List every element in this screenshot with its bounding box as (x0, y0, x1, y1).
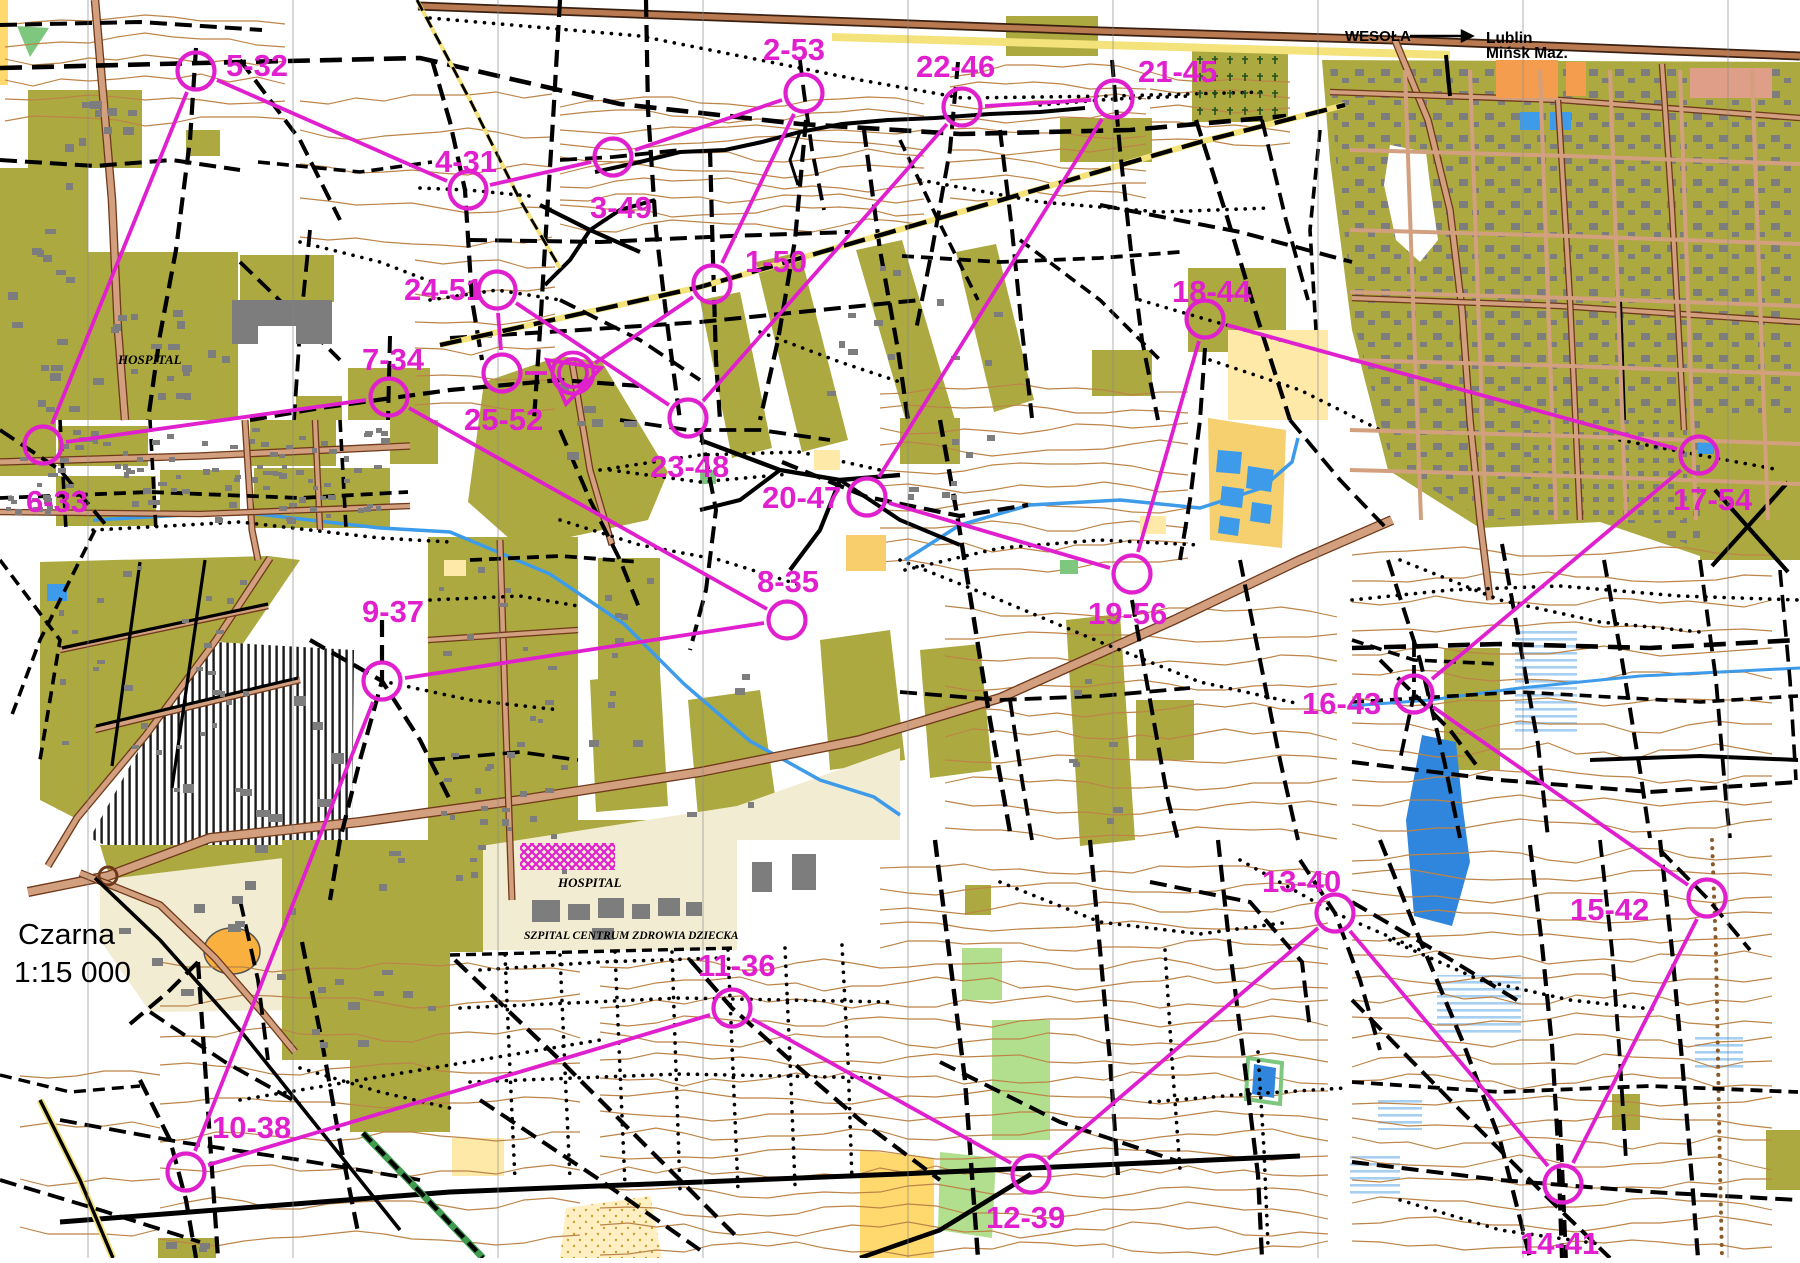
svg-text:3-49: 3-49 (590, 190, 652, 225)
svg-text:6-33: 6-33 (26, 484, 88, 519)
svg-text:WESOŁA: WESOŁA (1345, 28, 1411, 45)
svg-text:15-42: 15-42 (1570, 892, 1649, 927)
svg-text:16-43: 16-43 (1302, 686, 1381, 721)
svg-text:1:15 000: 1:15 000 (14, 957, 131, 989)
svg-text:24-51: 24-51 (404, 272, 483, 307)
svg-text:21-45: 21-45 (1138, 54, 1217, 89)
svg-text:14-41: 14-41 (1520, 1226, 1599, 1258)
svg-text:HOSPITAL: HOSPITAL (557, 875, 622, 890)
svg-text:8-35: 8-35 (757, 564, 819, 599)
svg-text:11-36: 11-36 (698, 948, 776, 983)
svg-text:22-46: 22-46 (916, 49, 995, 84)
svg-text:Czarna: Czarna (18, 919, 116, 951)
svg-text:5-32: 5-32 (226, 48, 288, 83)
svg-text:1-50: 1-50 (745, 244, 807, 279)
svg-text:17-54: 17-54 (1673, 482, 1753, 517)
svg-text:10-38: 10-38 (212, 1110, 291, 1145)
svg-text:25-52: 25-52 (464, 402, 543, 437)
svg-text:4-31: 4-31 (435, 144, 497, 179)
svg-text:SZPITAL CENTRUM ZDROWIA DZIECK: SZPITAL CENTRUM ZDROWIA DZIECKA (524, 930, 739, 942)
svg-text:7-34: 7-34 (362, 342, 425, 377)
svg-text:9-37: 9-37 (362, 594, 424, 629)
svg-text:2-53: 2-53 (763, 32, 825, 67)
svg-text:HOSPITAL: HOSPITAL (117, 352, 182, 367)
svg-text:13-40: 13-40 (1262, 864, 1341, 899)
svg-text:19-56: 19-56 (1088, 596, 1167, 631)
svg-text:Mińsk Maz.: Mińsk Maz. (1486, 45, 1568, 62)
svg-text:18-44: 18-44 (1172, 274, 1252, 309)
svg-text:23-48: 23-48 (650, 449, 729, 484)
svg-text:20-47: 20-47 (762, 480, 841, 515)
svg-text:12-39: 12-39 (986, 1200, 1065, 1235)
